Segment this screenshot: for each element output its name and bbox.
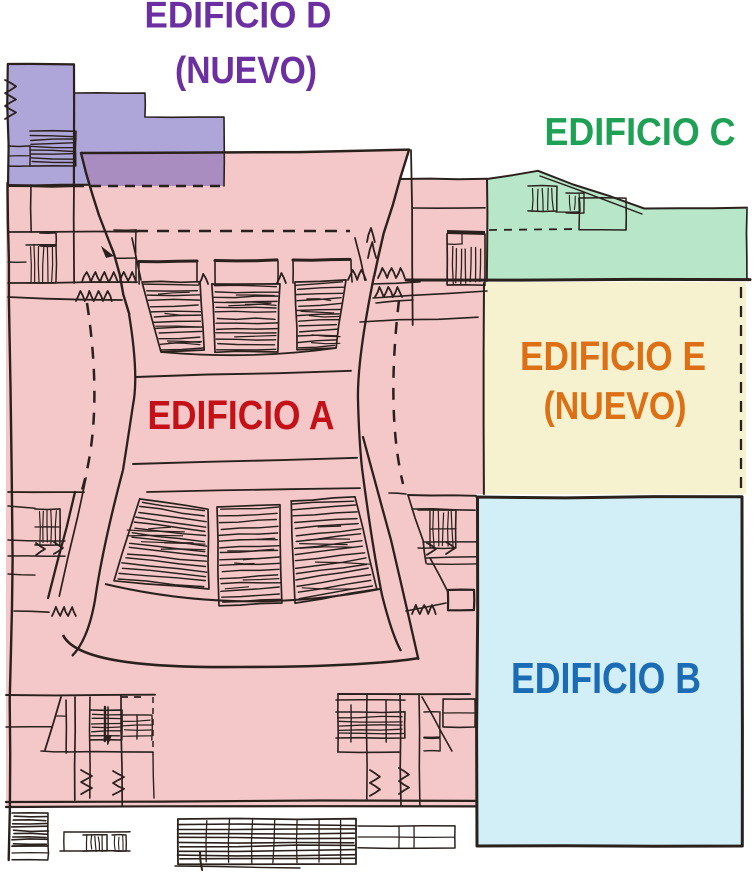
svg-text:(NUEVO): (NUEVO) bbox=[544, 385, 687, 428]
svg-text:(NUEVO): (NUEVO) bbox=[175, 49, 317, 92]
svg-text:EDIFICIO E: EDIFICIO E bbox=[520, 333, 706, 379]
svg-text:EDIFICIO A: EDIFICIO A bbox=[148, 392, 335, 438]
svg-text:EDIFICIO D: EDIFICIO D bbox=[145, 0, 332, 36]
svg-text:EDIFICIO C: EDIFICIO C bbox=[545, 111, 736, 154]
svg-text:EDIFICIO B: EDIFICIO B bbox=[511, 655, 701, 703]
